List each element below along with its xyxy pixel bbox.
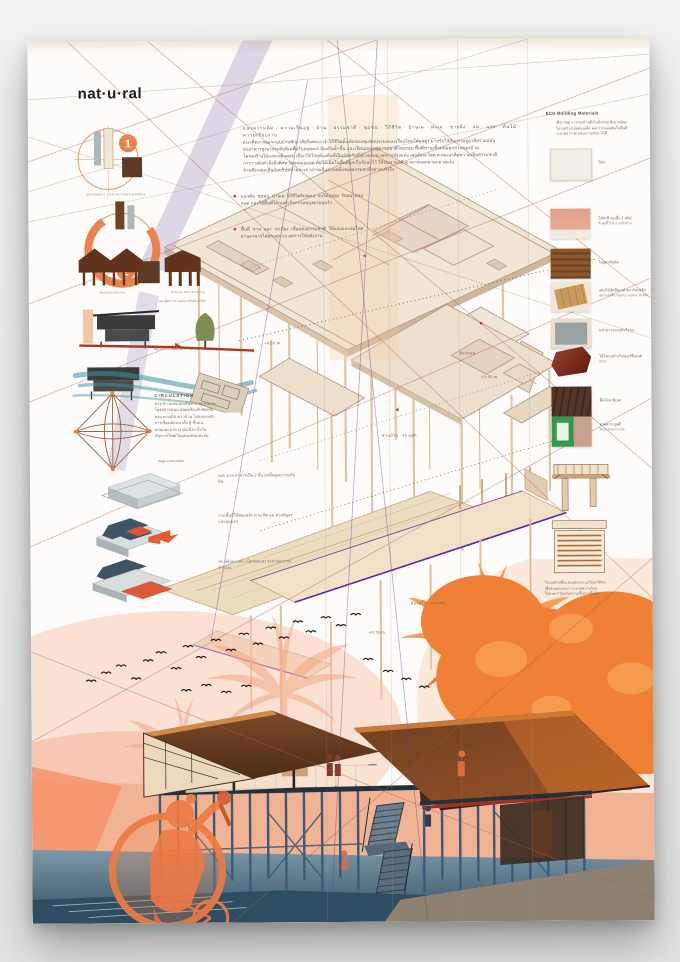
- concept-diagram-1: 1: [66, 123, 166, 196]
- material-label-group: ไม้ฝาสี รองพื้น T-ABC สี พุตตี้โอ๊ค แบบผ…: [598, 216, 650, 227]
- axon-label-terrace: ชานบ้าน · 45 sqm.: [382, 432, 418, 439]
- poster-sheet: nat·u·ral แนวความคิด · ความเป็นอยู่ · บ้…: [27, 38, 654, 924]
- material-label: หน้าต่างวงกบสำเร็จรูป: [599, 328, 651, 334]
- axon-label-level: +4.50 m.: [264, 340, 281, 345]
- materials-intro-line: ระบายอากาศ และความร้อน ได้ดี: [556, 131, 648, 137]
- axon-label-bedroom: ห้องนอน: [459, 349, 475, 356]
- material-swatch-eucalyptus: [551, 248, 591, 278]
- badge-1: 1: [125, 138, 131, 150]
- silhouette2-caption: Natural Stilt Building: [154, 290, 222, 295]
- material-swatch-painted-board: [550, 208, 590, 238]
- poster-title: nat·u·ral: [78, 85, 143, 102]
- section-caption: แนวคิดการวางอาคารกับต้นไม้เดิม: [159, 298, 259, 304]
- circulation-wireframe: [71, 389, 154, 473]
- massing1-caption: แยก มวล อาคารเป็น 2 ชั้น ยกพื้นสูงจากระด…: [218, 472, 296, 485]
- circulation-title: CIRCULATION: [154, 393, 194, 398]
- material-swatch-siding: [550, 148, 592, 180]
- intro-paragraph: แนวความคิด · ความเป็นอยู่ · บ้าน · ธรรมช…: [243, 124, 521, 174]
- bullet-dot: [233, 195, 236, 198]
- material-sublabel: สี พุตตี้โอ๊ค แบบผิวด้าน: [598, 221, 650, 226]
- plank-texture: [554, 284, 588, 310]
- bullet-item: พื้นที่ ชาน และ ระเบียง เชื่อมต่อธรรมชาต…: [233, 226, 363, 241]
- material-label: พื้นไม้ลามิเนต: [600, 398, 652, 404]
- mockup-background: nat·u·ral แนวความคิด · ความเป็นอยู่ · บ้…: [0, 0, 680, 962]
- circ-line: เกิดการไหลเวียนของคนและลม: [155, 432, 263, 439]
- material-sublabel: ชุดโครงพื้น รอยต่อ Joyest Timber: [599, 293, 651, 298]
- material-label-group: ไม้โครงสร้างไฟเบอร์ซีเมนต์ SCG: [599, 354, 651, 365]
- material-label-group: แผ่นไม้อัดซีเมนต์ สมาร์ทบอร์ด ชุดโครงพื้…: [599, 288, 651, 299]
- axon-label-level2: +1.50 m.: [481, 374, 498, 379]
- detail-drawing-deck: [550, 456, 614, 516]
- stage-caption: stage Composition: [158, 459, 184, 464]
- massing-step-3: [80, 553, 192, 606]
- materials-intro: เลือกวัสดุ การก่อสร้างที่เป็นมิตรต่อ สิ่…: [556, 120, 648, 137]
- detail-drawing-louver: [548, 518, 610, 576]
- material-label-group: ลวดลาย ปูนสี Gray Stain Code: [600, 422, 652, 433]
- bullet-item: แนวคิด ชุมชน บ้านเผ วิถีชีวิตริมทะเล ยกใ…: [233, 193, 363, 208]
- material-swatch-stain: [552, 416, 592, 446]
- material-label: ไม้ฝา: [598, 160, 648, 166]
- axon-label-kitchen: ห้องครัว · ชานหลัง: [411, 599, 446, 606]
- diagram1-caption: MOVEMENT LIFE PATTERN BANPHE: [68, 192, 164, 197]
- massing2-caption: วาง พื้นที่ใช้สอยหลัก ตาม ทิศ ลม ทางสัญจ…: [218, 512, 296, 525]
- material-label: ไม้ยูคาลิปตัส: [599, 260, 651, 266]
- axon-label-level3: +0.75 m.: [369, 630, 386, 635]
- material-swatch-laminate: [551, 386, 591, 416]
- bullet-text: พื้นที่ ชาน และ ระเบียง เชื่อมต่อธรรมชาต…: [241, 226, 364, 241]
- material-swatch-smartboard: [551, 281, 591, 311]
- material-sublabel: Gray Stain Code: [600, 427, 652, 432]
- massing3-caption: ยก หลังคา และ เปิดช่องแสง ระบายอากาศ ด้า…: [218, 558, 296, 571]
- circulation-paragraph: ทางเข้า ออกแบบเส้นทาง ชุมชนและ โครงข่ายถ…: [155, 400, 263, 439]
- bullet-dot: [233, 228, 236, 231]
- wind-caption: ทิศ ทาง ลม ทะเล (SITE FLOW): [154, 347, 254, 353]
- bullet-text: แนวคิด ชุมชน บ้านเผ วิถีชีวิตริมทะเล ยกใ…: [241, 193, 364, 208]
- detail-caption: โครงสร้างพื้นและผนังระแนงไม้ยกใต้ถุน เพื…: [545, 580, 631, 597]
- material-swatch-window-frame: [551, 318, 591, 348]
- silhouette1-caption: Building Outline: [79, 290, 147, 295]
- material-sublabel: SCG: [599, 359, 651, 364]
- materials-header: ECO Building Materials: [546, 110, 599, 115]
- stilt-silhouettes: [77, 244, 222, 289]
- detail-caption-line: ใต้อาคารป้องกันความชื้นจากพื้นดิน: [545, 591, 631, 597]
